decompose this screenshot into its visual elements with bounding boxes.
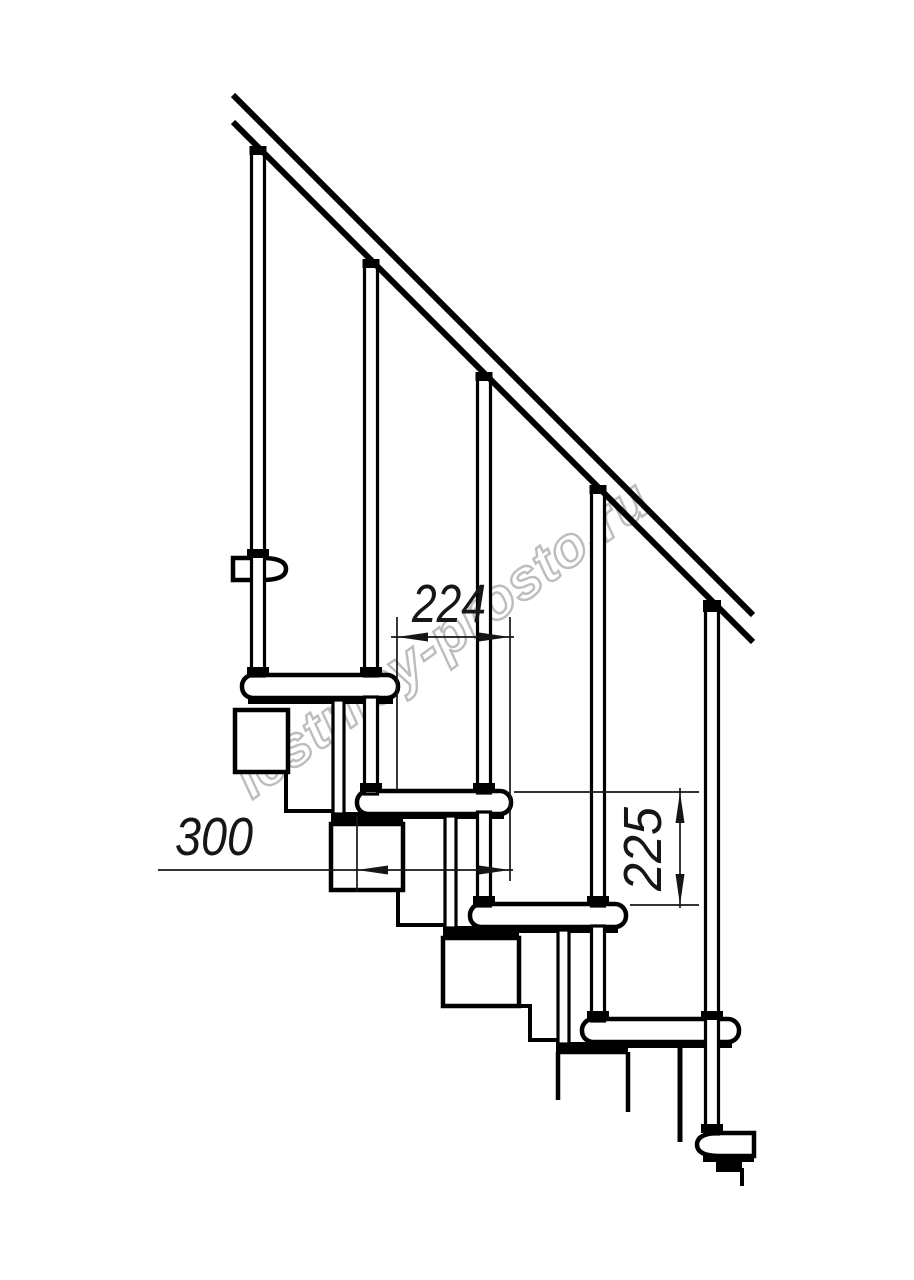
baluster-tube (478, 812, 491, 906)
arrowhead-right (479, 866, 510, 875)
module-box (331, 824, 403, 890)
dim-label-tread-depth: 300 (175, 807, 253, 867)
baluster-tube (365, 697, 378, 794)
baluster-flange (360, 667, 382, 676)
baluster-tube (592, 926, 605, 1021)
handrail (233, 95, 753, 642)
dim-label-step-rise: 225 (613, 806, 673, 892)
staircase-side-view-drawing: lestnicy-prosto.ru (0, 0, 914, 1280)
arrowhead-up (676, 792, 685, 823)
baluster-flange (473, 896, 495, 905)
upper-floor-support (235, 710, 288, 772)
handrail-top-edge (233, 95, 753, 615)
module-tube (558, 930, 569, 1044)
staircase-drawing-page: lestnicy-prosto.ru (0, 0, 914, 1280)
module-connector (398, 890, 447, 925)
dim-label-step-offset: 224 (411, 574, 486, 634)
baluster-flange (247, 667, 269, 676)
baluster-flange (587, 896, 609, 905)
baluster-flange (360, 783, 382, 792)
baluster-shaft (252, 152, 265, 676)
steps (233, 558, 754, 1156)
module-tube (445, 816, 456, 928)
baluster-flange (587, 1011, 609, 1020)
baluster-flange (701, 1011, 723, 1020)
step-underside (703, 1154, 754, 1162)
module-connector (716, 1170, 742, 1186)
step-tread (242, 675, 398, 698)
module-box-open (556, 1052, 628, 1112)
module-box (443, 938, 519, 1006)
baluster-shaft (706, 604, 719, 1134)
baluster-shaft (592, 490, 605, 906)
step-underside (716, 1162, 742, 1169)
baluster-shaft (365, 264, 378, 676)
step-tread-cropped-right (697, 1133, 754, 1156)
arrowhead-down (676, 874, 685, 905)
baluster-flange (701, 1124, 723, 1133)
baluster-flange (247, 549, 269, 558)
baluster-flange (473, 783, 495, 792)
module-tube (333, 700, 344, 814)
